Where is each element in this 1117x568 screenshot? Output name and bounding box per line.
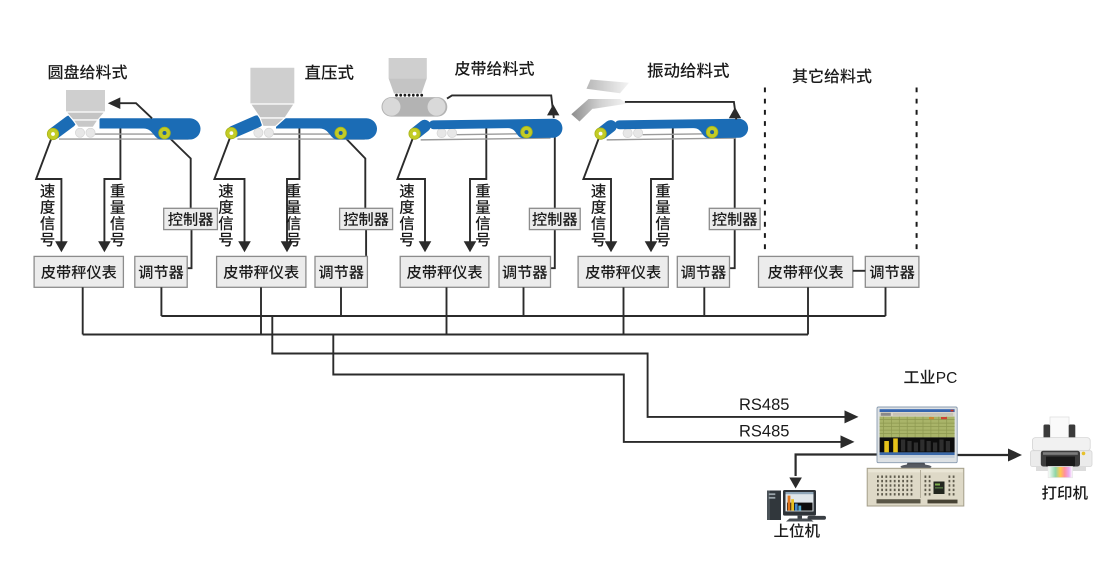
svg-text:RS485: RS485 [739,396,789,414]
svg-text:RS485: RS485 [739,423,789,441]
svg-text:PC: PC [936,370,958,387]
